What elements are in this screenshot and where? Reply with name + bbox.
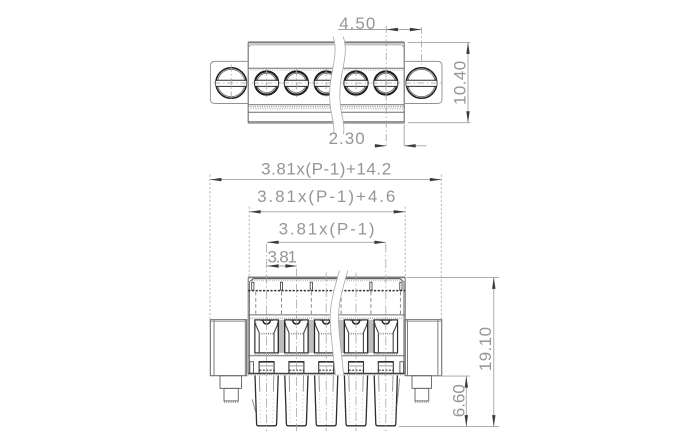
svg-text:3.81x(P-1)+4.6: 3.81x(P-1)+4.6 bbox=[257, 187, 397, 206]
svg-text:4.50: 4.50 bbox=[339, 14, 376, 33]
svg-text:3.81: 3.81 bbox=[268, 247, 297, 266]
svg-text:3.81x(P-1)+14.2: 3.81x(P-1)+14.2 bbox=[261, 159, 392, 178]
svg-text:6.60: 6.60 bbox=[450, 384, 469, 417]
svg-text:2.30: 2.30 bbox=[329, 129, 366, 148]
svg-text:3.81x(P-1): 3.81x(P-1) bbox=[279, 219, 377, 238]
svg-text:19.10: 19.10 bbox=[476, 327, 495, 372]
svg-text:10.40: 10.40 bbox=[450, 60, 469, 105]
